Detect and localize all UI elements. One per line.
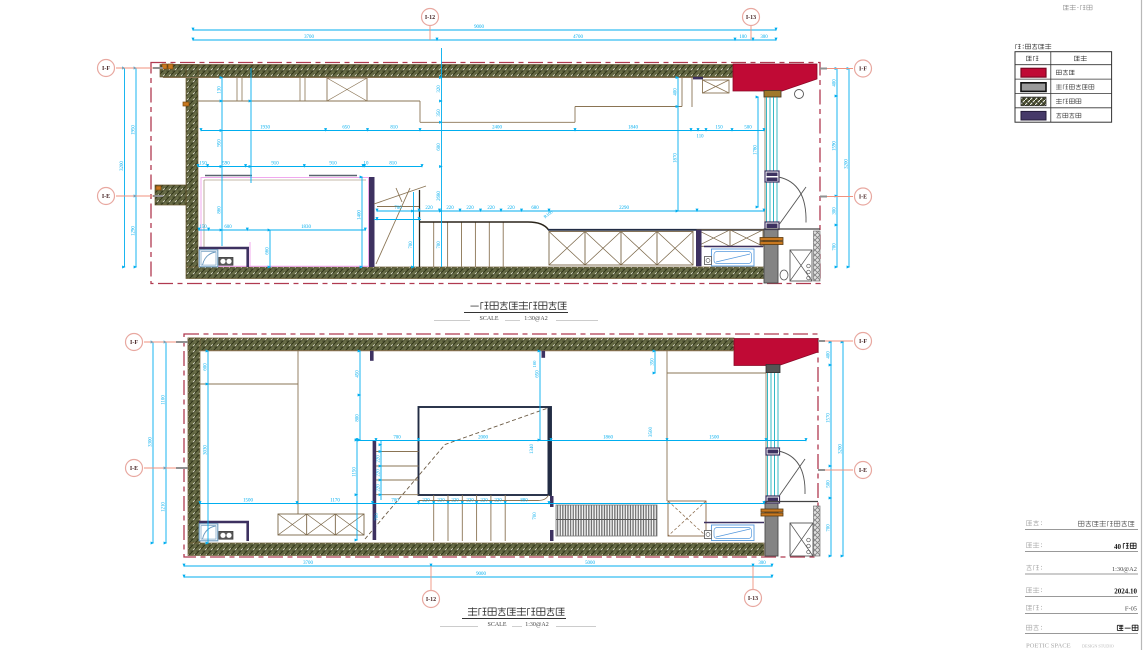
svg-text:350: 350 bbox=[650, 358, 655, 366]
svg-text:220: 220 bbox=[376, 484, 381, 492]
svg-text:680: 680 bbox=[531, 206, 539, 211]
svg-text:I-E: I-E bbox=[130, 466, 138, 472]
svg-text:1:30@A2: 1:30@A2 bbox=[1112, 566, 1137, 573]
svg-text:150: 150 bbox=[715, 125, 723, 130]
svg-text:110: 110 bbox=[696, 135, 704, 140]
svg-text:1290: 1290 bbox=[131, 226, 136, 236]
svg-text:400: 400 bbox=[826, 351, 831, 359]
svg-text:I-F: I-F bbox=[102, 66, 110, 72]
svg-text:1870: 1870 bbox=[673, 153, 678, 163]
svg-text:1950: 1950 bbox=[131, 125, 136, 135]
svg-text:I-12: I-12 bbox=[425, 15, 435, 21]
svg-text:860: 860 bbox=[217, 206, 222, 214]
svg-text:220: 220 bbox=[446, 206, 454, 211]
svg-text:220: 220 bbox=[437, 498, 445, 503]
svg-text:700: 700 bbox=[437, 241, 442, 249]
svg-text:DESIGN STUDIO: DESIGN STUDIO bbox=[1082, 644, 1114, 649]
svg-text:500: 500 bbox=[826, 480, 831, 488]
svg-text:3030: 3030 bbox=[203, 445, 208, 455]
svg-text:220: 220 bbox=[451, 498, 459, 503]
svg-text:1590: 1590 bbox=[832, 141, 837, 151]
svg-text:590: 590 bbox=[222, 161, 230, 166]
svg-text:1400: 1400 bbox=[357, 210, 362, 220]
svg-text:1930: 1930 bbox=[260, 125, 270, 130]
svg-text:400: 400 bbox=[673, 88, 678, 96]
svg-text:300: 300 bbox=[760, 35, 768, 40]
svg-text:3200: 3200 bbox=[844, 159, 849, 169]
svg-text:SCALE: SCALE bbox=[487, 622, 506, 628]
svg-text:2290: 2290 bbox=[619, 206, 629, 211]
svg-text:1170: 1170 bbox=[330, 498, 340, 503]
svg-text:40: 40 bbox=[1114, 543, 1122, 551]
svg-text:POETIC SPACE: POETIC SPACE bbox=[1026, 643, 1071, 650]
svg-text:220: 220 bbox=[376, 469, 381, 477]
svg-text:700: 700 bbox=[394, 206, 402, 211]
svg-text:1840: 1840 bbox=[628, 125, 638, 130]
svg-text:910: 910 bbox=[271, 161, 279, 166]
svg-text:3200: 3200 bbox=[838, 444, 843, 454]
svg-text:I-13: I-13 bbox=[746, 15, 756, 21]
svg-text:600: 600 bbox=[203, 363, 208, 371]
svg-text:700: 700 bbox=[393, 435, 401, 440]
svg-text:1570: 1570 bbox=[826, 413, 831, 423]
svg-text:3200: 3200 bbox=[120, 161, 125, 171]
svg-text:3300: 3300 bbox=[148, 437, 153, 447]
svg-text:660: 660 bbox=[265, 247, 270, 255]
svg-text:950: 950 bbox=[217, 139, 222, 147]
svg-text:1:30@A2: 1:30@A2 bbox=[524, 316, 548, 322]
svg-text:10: 10 bbox=[364, 161, 369, 166]
svg-text:880: 880 bbox=[520, 498, 528, 503]
svg-text:100: 100 bbox=[532, 360, 537, 368]
svg-text:100: 100 bbox=[739, 35, 747, 40]
svg-text:1500: 1500 bbox=[243, 498, 253, 503]
svg-text:I-13: I-13 bbox=[748, 596, 758, 602]
svg-text:600: 600 bbox=[224, 225, 232, 230]
svg-text:I-F: I-F bbox=[859, 67, 867, 73]
svg-text:1500: 1500 bbox=[709, 435, 719, 440]
svg-text:700: 700 bbox=[375, 513, 380, 521]
svg-text:700: 700 bbox=[832, 243, 837, 251]
svg-text:320: 320 bbox=[437, 85, 442, 93]
svg-text:150: 150 bbox=[199, 161, 207, 166]
svg-text:220: 220 bbox=[376, 455, 381, 463]
svg-text:220: 220 bbox=[425, 206, 433, 211]
svg-text:I-F: I-F bbox=[130, 340, 138, 346]
svg-text:220: 220 bbox=[466, 498, 474, 503]
svg-text:300: 300 bbox=[832, 207, 837, 215]
svg-text:150: 150 bbox=[199, 225, 207, 230]
svg-text:1340: 1340 bbox=[530, 444, 535, 455]
svg-text:3700: 3700 bbox=[303, 561, 313, 566]
svg-text:700: 700 bbox=[391, 498, 399, 503]
svg-text:130: 130 bbox=[217, 86, 222, 94]
svg-text:600: 600 bbox=[437, 143, 442, 151]
svg-text:450: 450 bbox=[355, 370, 360, 378]
svg-text:I-E: I-E bbox=[859, 195, 867, 201]
svg-text:1210: 1210 bbox=[161, 502, 166, 512]
svg-text:700: 700 bbox=[533, 512, 538, 520]
svg-text:I-E: I-E bbox=[102, 194, 110, 200]
svg-text:220: 220 bbox=[487, 206, 495, 211]
svg-text:220: 220 bbox=[466, 206, 474, 211]
svg-text:SCALE: SCALE bbox=[479, 316, 498, 322]
svg-text:500: 500 bbox=[744, 125, 752, 130]
svg-text:910: 910 bbox=[329, 161, 337, 166]
svg-text:650: 650 bbox=[342, 125, 350, 130]
svg-text:2024.10: 2024.10 bbox=[1114, 588, 1137, 596]
svg-text:2680: 2680 bbox=[437, 191, 442, 201]
svg-text:300: 300 bbox=[758, 561, 766, 566]
svg-text:810: 810 bbox=[389, 161, 397, 166]
svg-text:2400: 2400 bbox=[492, 125, 502, 130]
svg-text:220: 220 bbox=[494, 498, 502, 503]
svg-text:1830: 1830 bbox=[301, 225, 311, 230]
svg-text:9000: 9000 bbox=[476, 572, 486, 577]
svg-text:3700: 3700 bbox=[304, 35, 314, 40]
svg-text:9000: 9000 bbox=[474, 25, 484, 30]
svg-text:700: 700 bbox=[826, 524, 831, 532]
svg-text:I-F: I-F bbox=[859, 339, 867, 345]
svg-text:5000: 5000 bbox=[585, 561, 595, 566]
svg-text:1860: 1860 bbox=[603, 435, 613, 440]
svg-text:220: 220 bbox=[507, 206, 515, 211]
svg-text:1100: 1100 bbox=[161, 395, 166, 405]
svg-text:3500: 3500 bbox=[649, 427, 654, 438]
svg-text:1150: 1150 bbox=[352, 467, 357, 477]
svg-text:810: 810 bbox=[390, 125, 398, 130]
svg-text:700: 700 bbox=[409, 241, 414, 249]
svg-text:350: 350 bbox=[437, 109, 442, 117]
svg-text:1:30@A2: 1:30@A2 bbox=[525, 622, 549, 628]
svg-text:800: 800 bbox=[355, 414, 360, 422]
svg-text:2000: 2000 bbox=[478, 435, 488, 440]
svg-text:F-05: F-05 bbox=[1125, 606, 1137, 613]
svg-text:1780: 1780 bbox=[753, 145, 758, 155]
svg-text:220: 220 bbox=[480, 498, 488, 503]
svg-text:220: 220 bbox=[422, 498, 430, 503]
svg-text:I-E: I-E bbox=[859, 468, 867, 474]
svg-text:650: 650 bbox=[535, 370, 540, 378]
svg-text:4700: 4700 bbox=[573, 35, 583, 40]
svg-text:400: 400 bbox=[832, 79, 837, 87]
svg-text:I-12: I-12 bbox=[426, 597, 436, 603]
